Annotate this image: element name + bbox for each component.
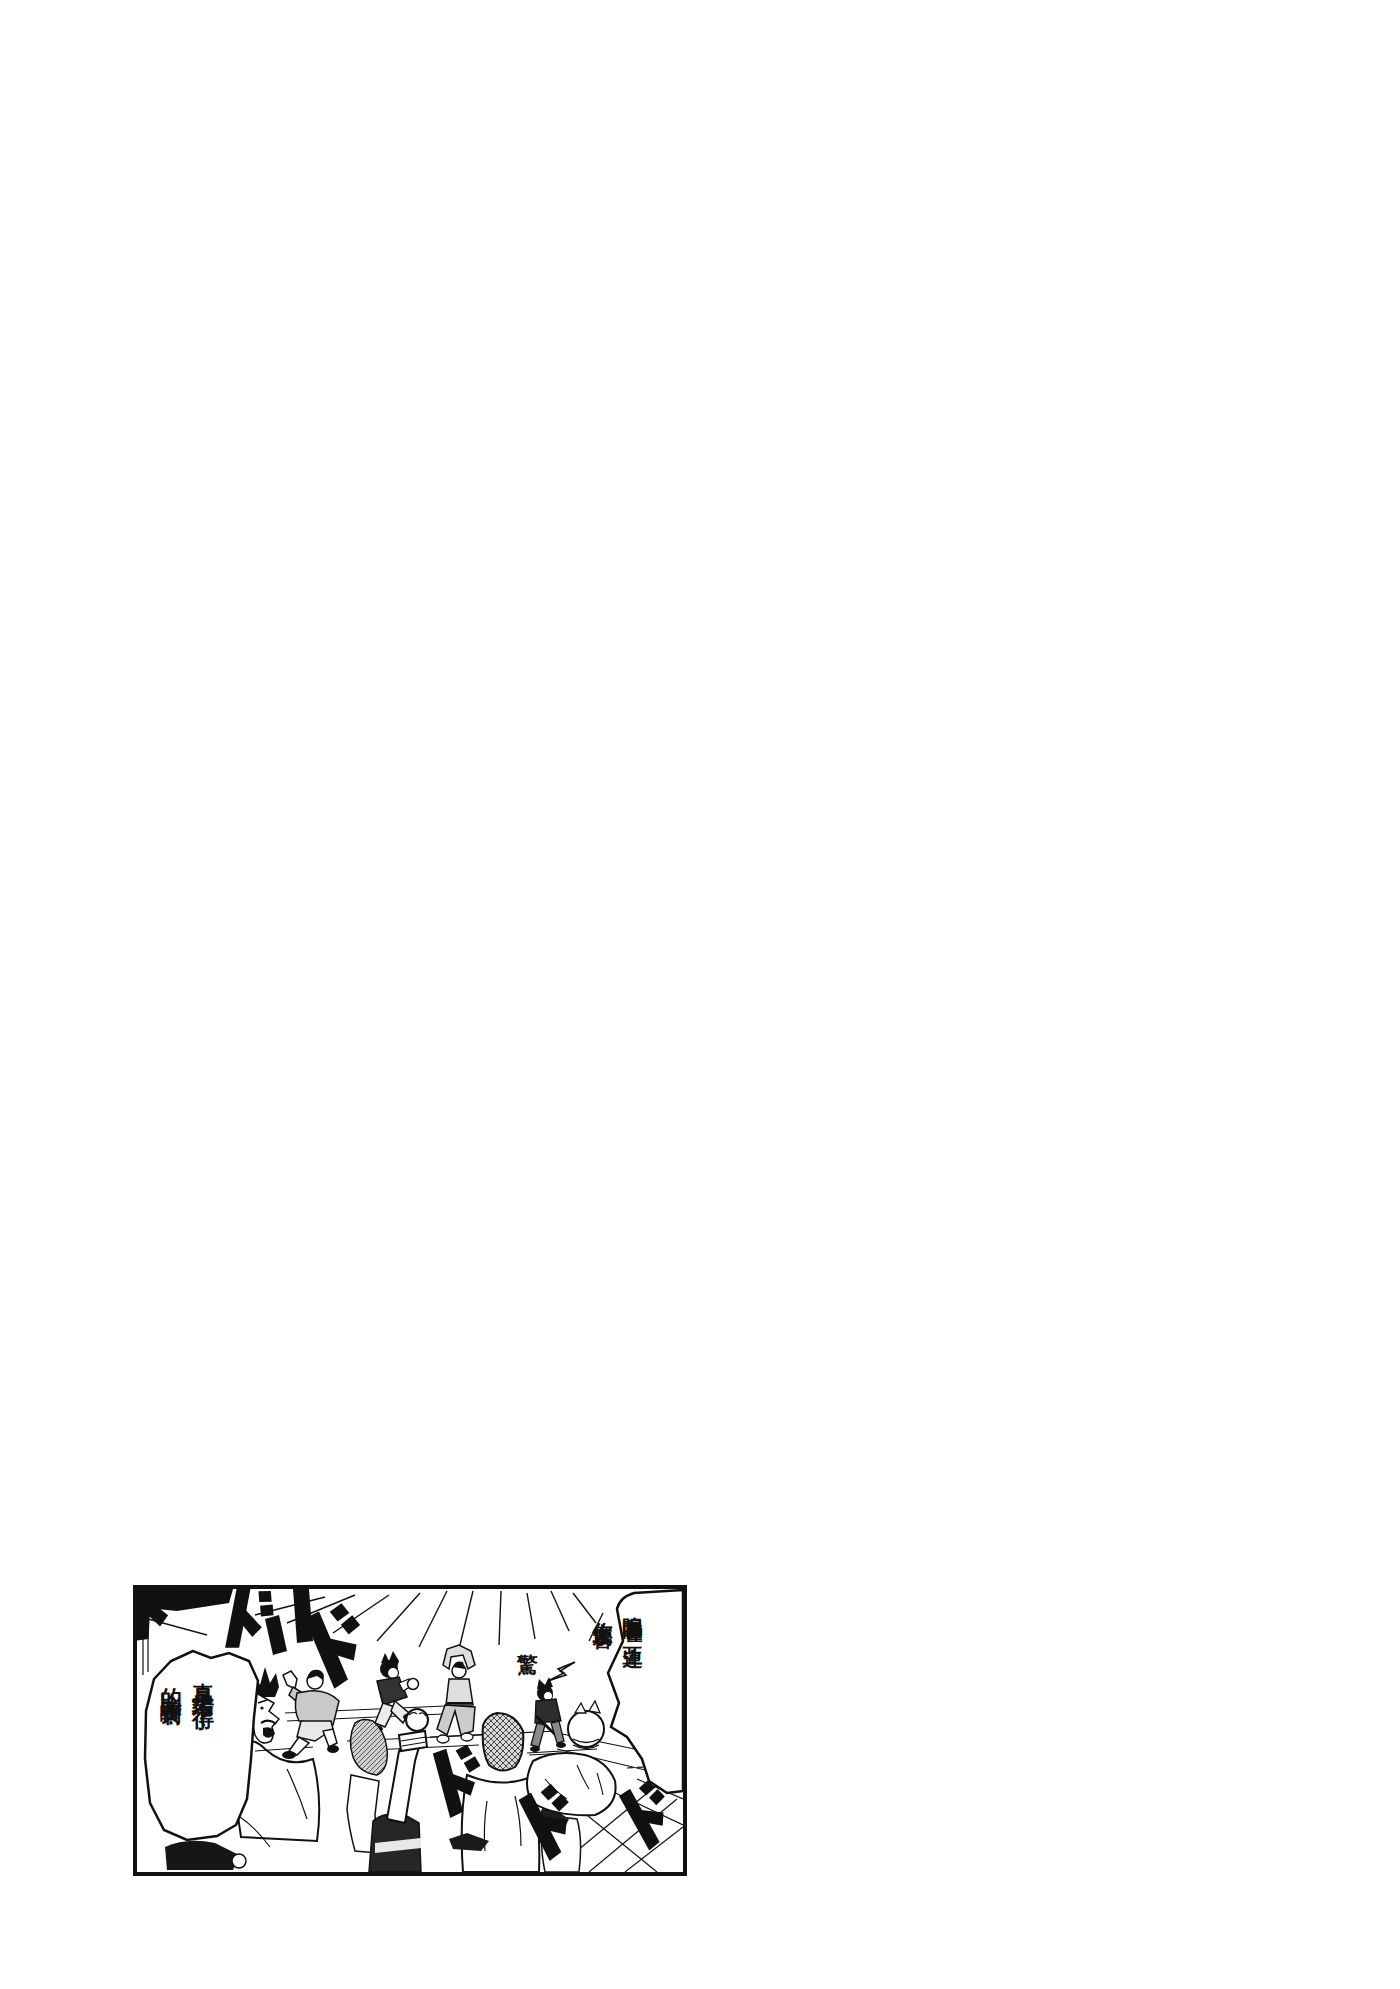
crowd-figure-arms-overhead <box>437 1645 475 1743</box>
speech-bubble-left: 真是場不得了 的比賽啊！ <box>155 1665 219 1845</box>
speech-bubble-right: 嗚喔喔喔！亞連！ 你太厲害了！ <box>588 1601 648 1801</box>
bubble-left-column-2: 的比賽啊！ <box>155 1665 187 1845</box>
bubble-right-column-1: 嗚喔喔喔！亞連！ <box>618 1601 648 1801</box>
manga-page: 嗚喔喔喔！亞連！ 你太厲害了！ 真是場不得了 的比賽啊！ 驚 <box>0 0 1400 1989</box>
surprise-arrow-icon <box>548 1662 575 1681</box>
crowd-figure-allen <box>529 1677 567 1755</box>
manga-panel: 嗚喔喔喔！亞連！ 你太厲害了！ 真是場不得了 的比賽啊！ 驚 <box>133 1585 687 1876</box>
bubble-right-column-2: 你太厲害了！ <box>588 1601 618 1801</box>
crowd-figure-gray-jumper <box>282 1670 339 1759</box>
surprise-kanji: 驚 <box>517 1651 539 1680</box>
bubble-left-column-1: 真是場不得了 <box>187 1665 219 1845</box>
